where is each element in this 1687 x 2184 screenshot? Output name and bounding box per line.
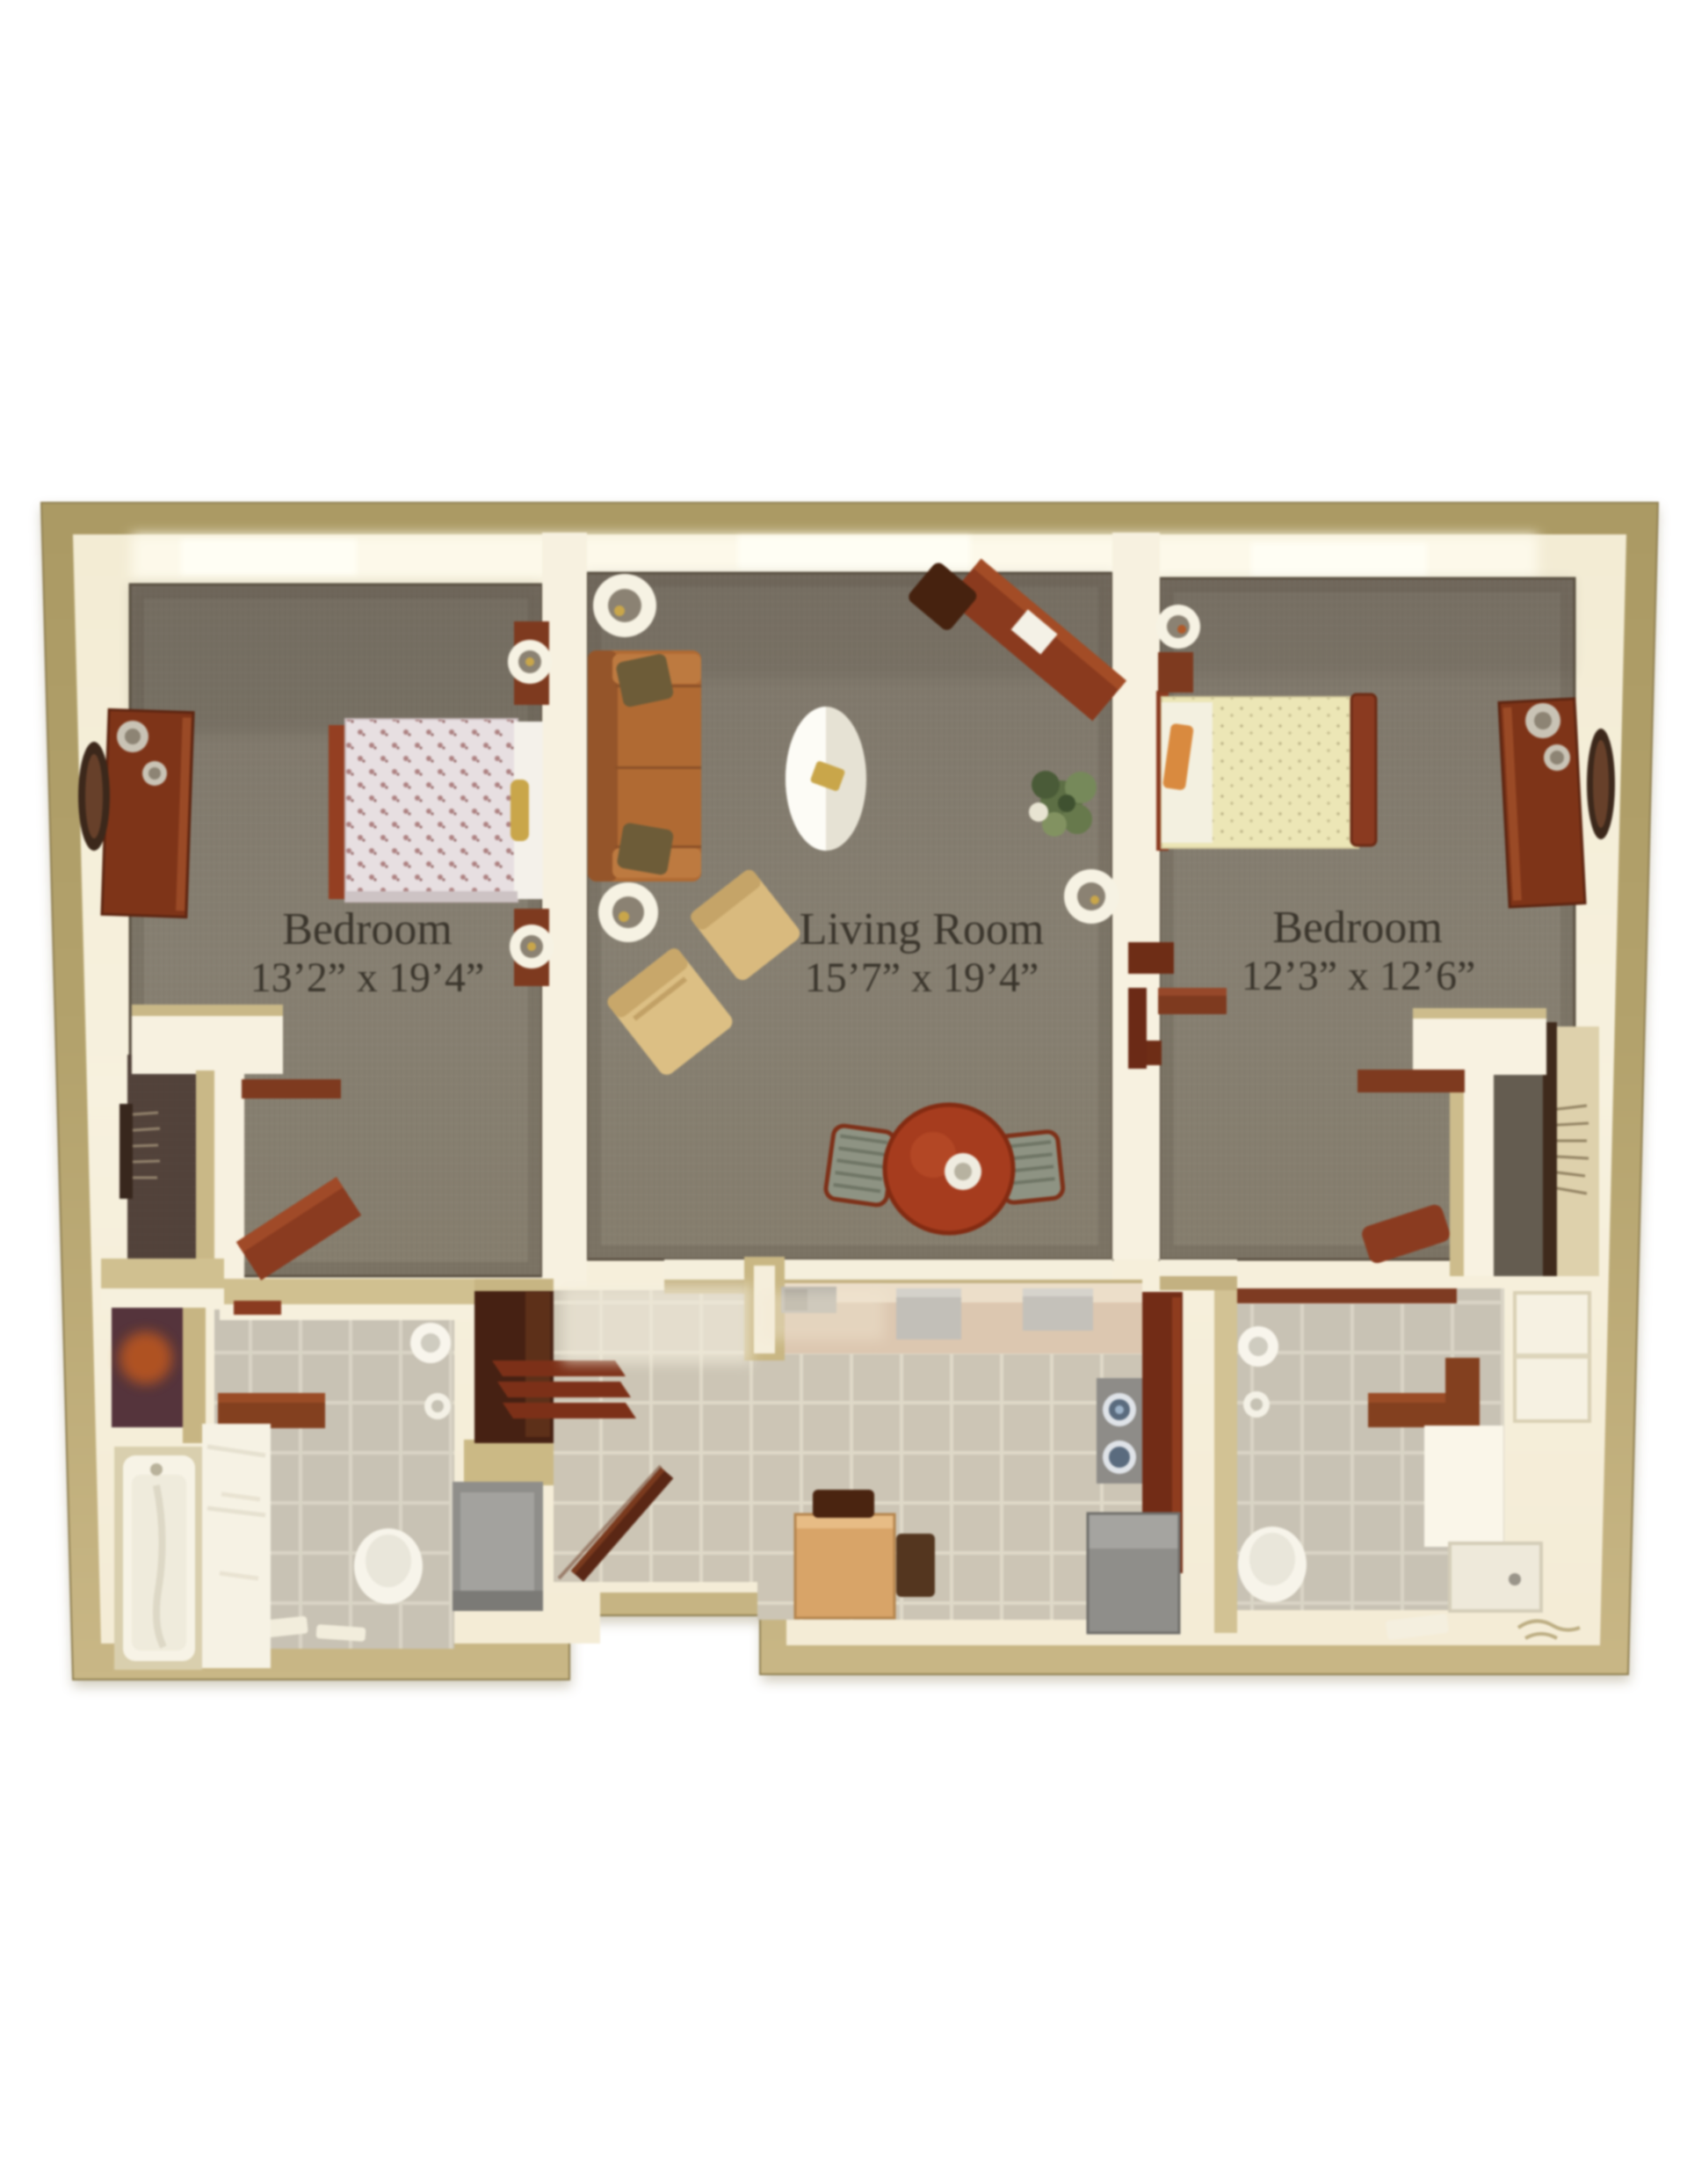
svg-text:Bedroom: Bedroom [282,904,453,954]
svg-text:Bedroom: Bedroom [1272,903,1443,953]
svg-text:13’2” x 19’4”: 13’2” x 19’4” [250,954,485,1001]
svg-text:12’3” x 12’6”: 12’3” x 12’6” [1242,953,1476,999]
svg-text:15’7” x 19’4”: 15’7” x 19’4” [805,954,1039,1001]
svg-text:Living Room: Living Room [800,904,1045,954]
